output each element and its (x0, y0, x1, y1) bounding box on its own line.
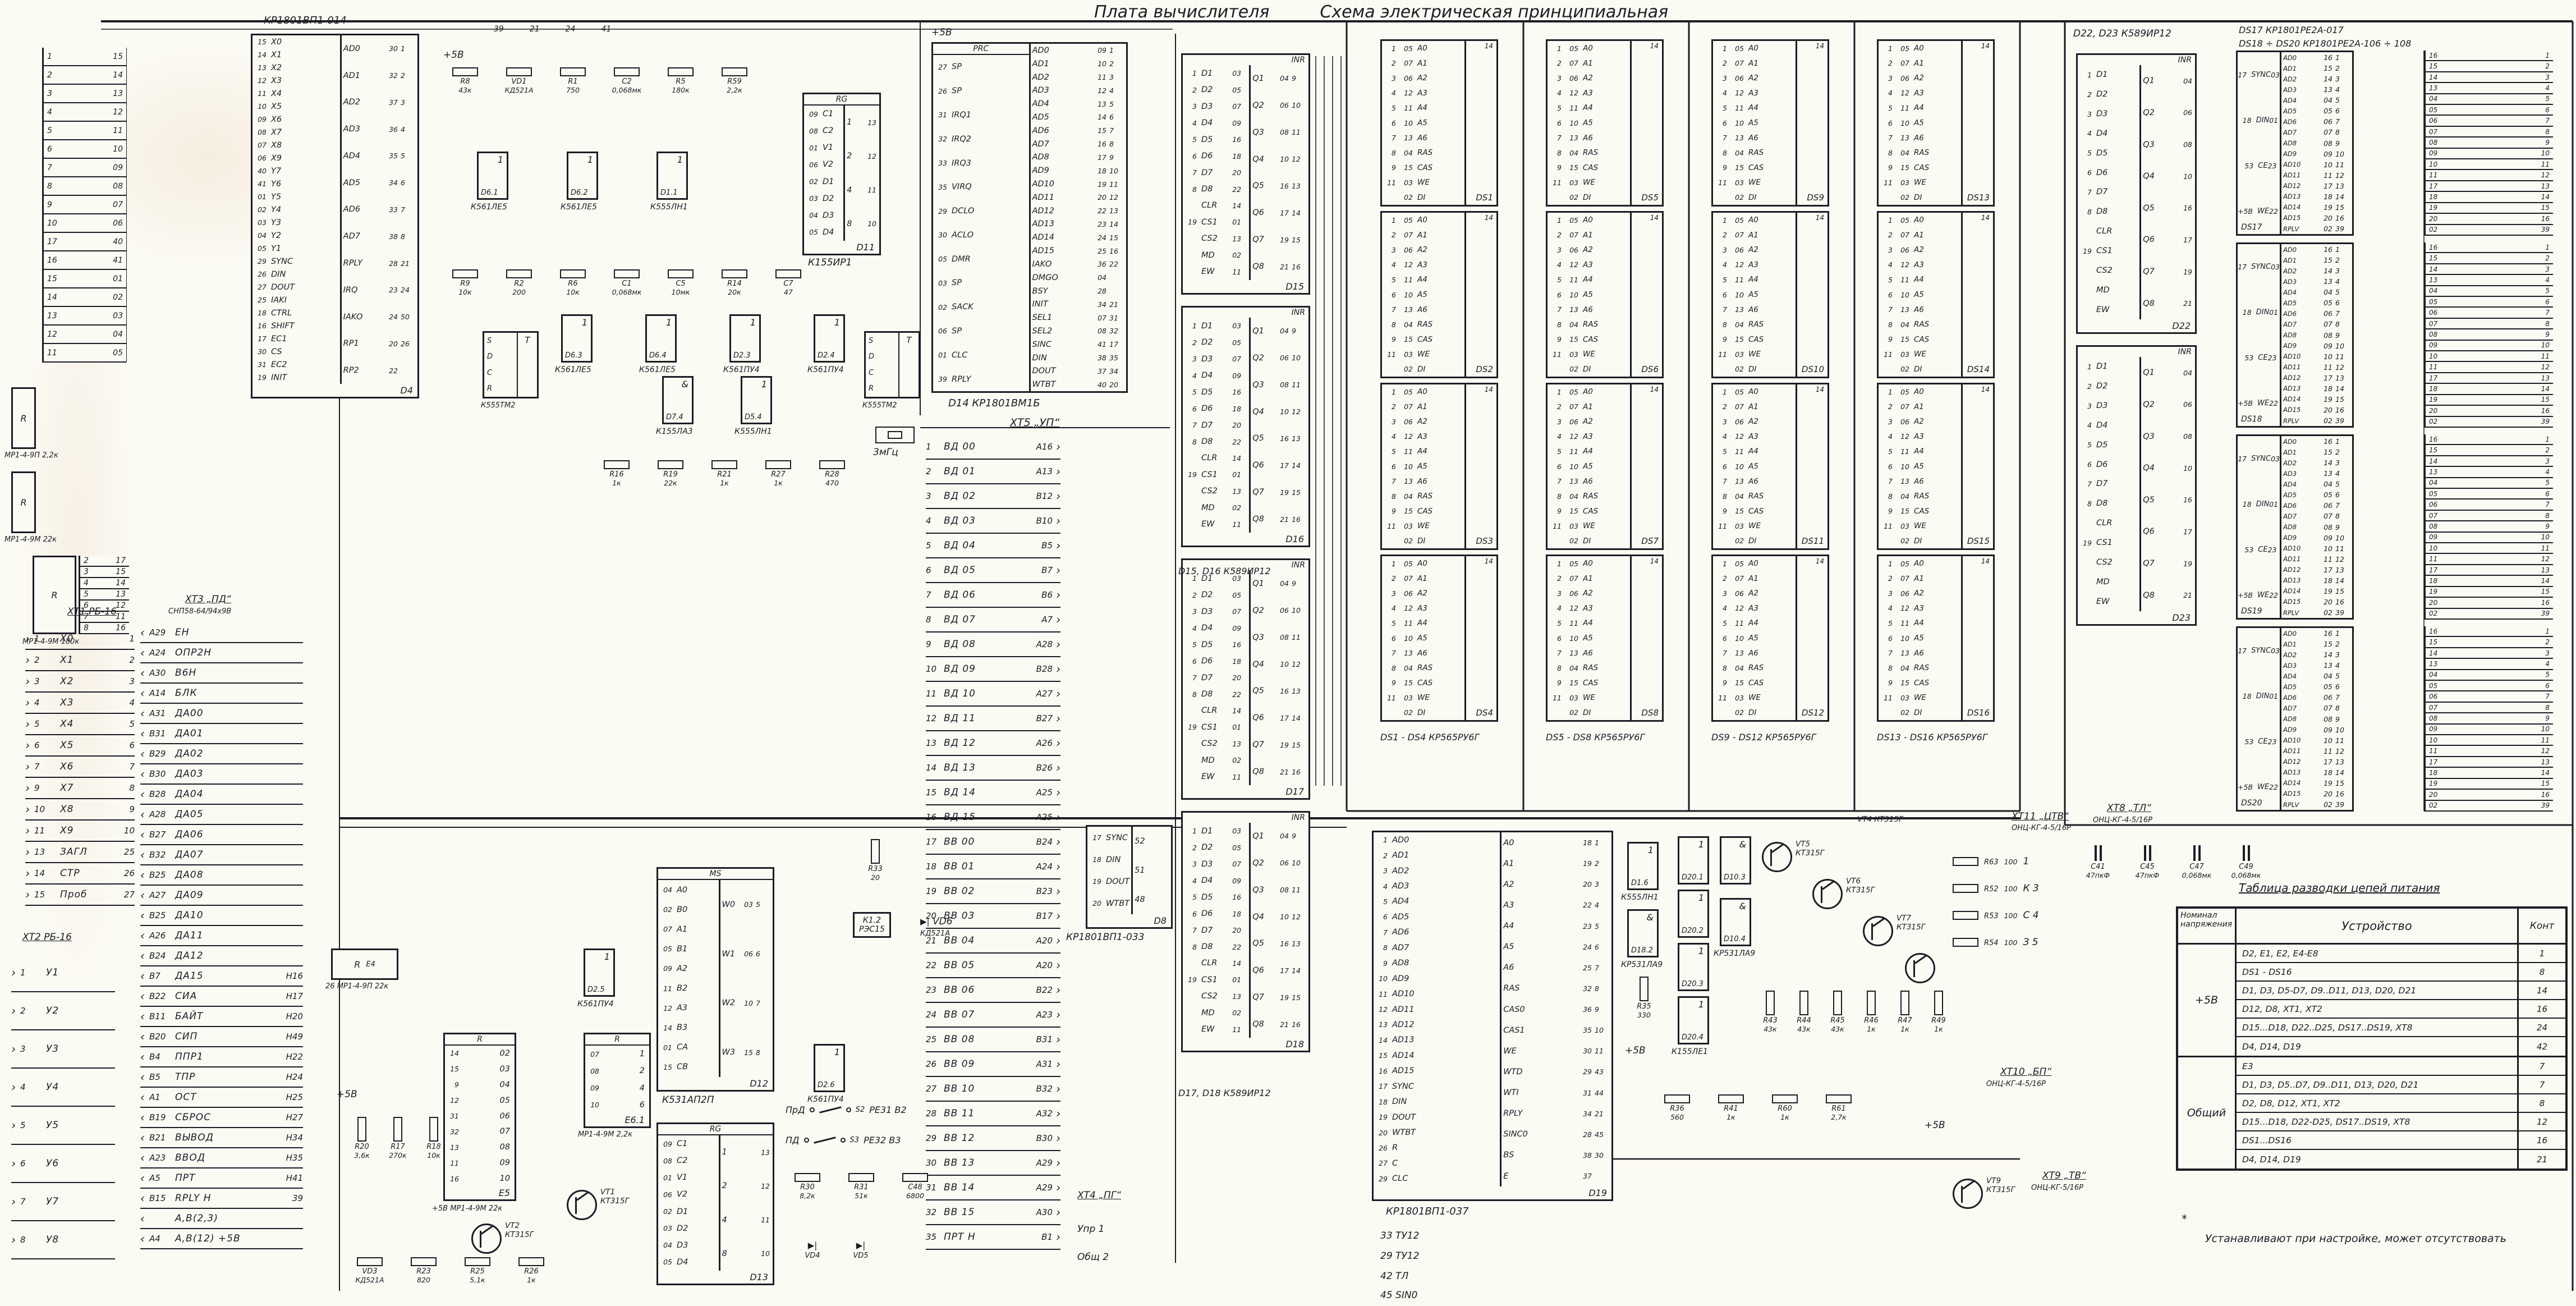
signal-name: СИП (175, 1031, 274, 1042)
pin-number: 4 (1382, 604, 1399, 612)
crystal-icon (875, 427, 915, 443)
ic-d8: 17SYNC18DIN19DOUT20WTBT 525148 D8 (1086, 825, 1173, 929)
npn-transistor-icon (567, 1190, 597, 1220)
pin-name: AD11 (2281, 747, 2318, 755)
pin-number: 34 (1092, 300, 1109, 309)
pin-number: 44 (1595, 1089, 1611, 1097)
pin-name: A1 (1747, 402, 1796, 411)
pin-row: W2107 (720, 979, 773, 1028)
pin-number: 12 (1895, 604, 1912, 612)
pin-number: 13 (2335, 566, 2352, 574)
ram-group-chips: 14 105A0207A1306A2412A3511A4610A5713A680… (1380, 39, 1498, 722)
pin-number: 26 (105, 868, 135, 878)
pin-number: 16 (2429, 52, 2437, 59)
part-value: 10к (458, 288, 471, 296)
pin-row: 18DIN01 (2238, 109, 2280, 132)
pin-row: Q61714 (1251, 704, 1308, 731)
pin-row: Q82116 (1251, 253, 1308, 280)
pin-number: 13 (1730, 305, 1747, 314)
pin-number: 2 (2335, 448, 2352, 456)
pin-row: 06SP (933, 319, 1029, 343)
pin-number: 13 (116, 590, 126, 599)
pin-number: 16 (2429, 627, 2437, 635)
pin-name: AD10 (2281, 544, 2318, 552)
pin-number: 9 (2335, 523, 2352, 531)
pin-name: Q8 (2141, 299, 2178, 308)
pin-row: 02DI (1713, 361, 1796, 377)
pin-number: 7 (2545, 309, 2550, 317)
contact-id: А5 (149, 1173, 175, 1183)
pin-name: A0 (1912, 387, 1961, 396)
discrete-part: C470,068мк (2175, 845, 2219, 879)
pin-number: 20 (2429, 215, 2437, 223)
pin-number: 9 (1879, 163, 1895, 172)
part-value: 20 (871, 873, 880, 882)
pin-name: A0 (1416, 387, 1464, 396)
pin-number: 18 (2429, 193, 2437, 201)
xt5-row: 3ВД 02В12 (926, 484, 1060, 509)
pin-name: BS (1501, 1151, 1578, 1160)
pin-number: 2 (1382, 231, 1399, 239)
pin-number: 07 (1895, 402, 1912, 411)
pin-name: AD5 (1031, 113, 1093, 122)
video-output-row: R53 100 С 4 (1953, 910, 2039, 921)
pin-number: 17 (2318, 758, 2335, 766)
pin-number: 26 (926, 1059, 944, 1069)
pin-number: 7 (1374, 928, 1390, 937)
resistor-icon (1953, 911, 1978, 920)
power-table-heading: Таблица разводки цепей питания (2239, 881, 2440, 895)
pin-name: RPLY (950, 375, 1029, 384)
pin-name: D4 (1200, 371, 1232, 380)
corner-pin: 14 (1485, 557, 1493, 565)
pin-number: 02 (1564, 365, 1581, 373)
pin-number: 08 (2429, 523, 2437, 530)
pin-row: 412A3 (1382, 429, 1464, 445)
pin-number: 18 (252, 309, 269, 317)
pin-row: 12AD11 (1374, 1002, 1500, 1017)
transceiver-left-pins: 1D1032D2053D3074D4095D5166D6187D7208D822… (1183, 318, 1251, 533)
pin-row: 17SYNC (1087, 827, 1131, 849)
ladder-row: 089 (2426, 713, 2553, 724)
ram-group-caption: DS1 - DS4 КР565РУ6Г (1380, 732, 1498, 743)
pin-number: 10 (2429, 544, 2437, 552)
pin-number: 1 (2545, 436, 2550, 443)
ladder-row: 115 (44, 48, 126, 66)
pin-name: D2 (821, 194, 843, 203)
pin-row: 610A5 (1713, 116, 1796, 131)
resistor-r33: R3320 (858, 839, 892, 882)
pin-name: CS2 (1200, 739, 1232, 748)
discrete-part: R1750 (551, 67, 595, 94)
pin-name: A4 (1747, 618, 1796, 627)
pin-number: 15 (1399, 507, 1416, 515)
ladder-row: 2016 (2426, 406, 2553, 416)
ladder-row: 1011 (2426, 543, 2553, 554)
transistor-label: VT4 КТ315Г (1857, 815, 1903, 824)
device-list: D2, Е1, Е2, Е4-Е8 (2237, 945, 2517, 962)
pin-row: AD121713 (2281, 181, 2352, 191)
pin-row: A4235 (1501, 916, 1611, 937)
ladder-row: 143 (2426, 72, 2553, 83)
title-main: Плата вычислителя (1094, 2, 1269, 22)
pin-row: 412A3 (1879, 258, 1961, 273)
pin-row: 1D103 (1183, 823, 1249, 839)
pin-row: 1D1 (2078, 65, 2139, 85)
pin-row: Q71915 (1251, 731, 1308, 758)
pin-row: AD152016 (2281, 789, 2352, 799)
pin-number: 16 (2541, 599, 2550, 607)
pin-number: 17 (116, 556, 126, 565)
pin-number: 13 (2318, 661, 2335, 670)
pin-number: 2 (1548, 402, 1564, 411)
pin-number: 2 (105, 655, 135, 665)
pin-number: 5 (47, 126, 52, 135)
pin-number: 02 (2429, 610, 2437, 617)
xt5-row: 30ВВ 13А29 (926, 1151, 1060, 1176)
pin-number: 08 (658, 1157, 675, 1165)
pin-name: AD10 (2281, 736, 2318, 744)
transistor-label: VT5КТ315Г (1796, 840, 1824, 858)
pin-name: AD15 (1390, 1066, 1500, 1075)
gate-symbol: & (664, 378, 692, 389)
pin-number: 12 (1564, 432, 1581, 441)
pin-number: 07 (1564, 402, 1581, 411)
rom-left-pins: 17SYNC0318DIN0153CE23+5ВWE22 (2238, 52, 2281, 234)
pin-number: 29 (933, 207, 950, 216)
pin-number: 01 (2269, 692, 2280, 700)
pin-row: 082 (585, 1062, 649, 1079)
pin-name: A6 (1416, 134, 1464, 143)
corner-pin: 14 (1816, 42, 1824, 50)
pin-number: 9 (1713, 163, 1730, 172)
ram-chip-ref: DS10 (1802, 364, 1824, 374)
pin-number: 3 (34, 676, 60, 686)
pin-number: 18 (2238, 692, 2254, 700)
pin-number: 08 (2318, 331, 2335, 340)
pin-number: 11 (1548, 350, 1564, 359)
pin-number: 9 (47, 200, 52, 209)
pin-number: 24 (384, 313, 401, 321)
pin-number: 05 (2318, 107, 2335, 115)
pin-name: AD5 (2281, 299, 2318, 307)
contact-id: В12 (1023, 491, 1053, 501)
xt5-row: 9ВД 08А28 (926, 633, 1060, 657)
pin-number: 04 (2318, 96, 2335, 104)
pin-row: 03SP (933, 271, 1029, 295)
pin-row: 02DI (1382, 533, 1464, 548)
pin-row: Q30811 (1251, 372, 1308, 398)
pin-name: A2 (1912, 74, 1961, 83)
signal-name: ВД 09 (944, 663, 1023, 675)
pin-number: 8 (2078, 500, 2095, 508)
pin-row: 1103WE (1879, 347, 1961, 362)
pin-row: 511A4 (1713, 100, 1796, 116)
ic-transceiver: INR 1D1032D2053D3074D4095D5166D6187D7208… (1181, 306, 1310, 547)
part-ref: C41 (2091, 863, 2105, 871)
logic-gate-d5-4: 1D5.4К555ЛН1 (741, 376, 772, 424)
pin-number: 03 (1399, 350, 1416, 359)
ram-chip-ref: DS13 (1967, 193, 1990, 203)
discrete-part: R1922к (649, 460, 692, 487)
ram-chip-ref: DS5 (1641, 193, 1659, 203)
pin-row: Q308 (2141, 420, 2195, 452)
discrete-part: C486800 (893, 1173, 937, 1200)
rom-column: 17SYNC0318DIN0153CE23+5ВWE22 AD0161AD115… (2236, 51, 2354, 812)
pin-row: AD90910 (2281, 149, 2352, 159)
pin-name: A4 (1416, 618, 1464, 627)
pin-number: 13 (1564, 305, 1581, 314)
pin-number: 16 (2541, 791, 2550, 799)
contact-count: 1 (2517, 945, 2565, 962)
pin-number: 2 (84, 556, 89, 565)
pin-number: 01 (1232, 470, 1249, 479)
component-icon (722, 67, 747, 76)
ram-chip: 14 105A0207A1306A2412A3511A4610A5713A680… (1711, 39, 1829, 207)
pin-number: 22 (2269, 399, 2280, 407)
wire-number: Н49 (274, 1032, 303, 1042)
ladder-row: 1112 (2426, 362, 2553, 373)
pin-number: 07 (1232, 860, 1249, 868)
pin-name: A2 (1912, 417, 1961, 426)
pin-row: 412A3 (1548, 601, 1630, 616)
pin-row: 53CE23 (2238, 539, 2280, 561)
pin-number: 04 (2178, 369, 2195, 377)
pin-row: Q61714 (1251, 199, 1308, 226)
pin-number: 11 (1399, 104, 1416, 112)
pin-number: 37 (384, 98, 401, 107)
pin-number: 06 (658, 1190, 675, 1199)
pin-row: 804RAS (1382, 145, 1464, 161)
pin-number: 05 (2429, 490, 2437, 498)
pin-number: 15 (2335, 395, 2352, 404)
pin-name: WE (1581, 693, 1630, 702)
pin-row: AD2143 (2281, 265, 2352, 276)
d8-right-pins: 525148 (1133, 827, 1171, 914)
pin-row: 207A1 (1713, 400, 1796, 415)
pin-number: 9 (1713, 335, 1730, 343)
pin-name: A0 (675, 886, 719, 895)
pin-name: A1 (1912, 59, 1961, 68)
pin-row: 412A3 (1713, 258, 1796, 273)
pin-name: 8 (720, 1249, 756, 1258)
pin-row: AD3134 (2281, 276, 2352, 287)
pin-number: 05 (1730, 44, 1747, 53)
pin-number: 02 (2318, 224, 2335, 233)
pin-number: 09 (1232, 624, 1249, 633)
pin-number: 03 (1895, 350, 1912, 359)
pin-name: AD5 (1390, 913, 1500, 922)
pin-number: 22 (2269, 207, 2280, 216)
pin-row: 804RAS (1382, 661, 1464, 676)
pin-name: Q2 (2141, 108, 2178, 117)
rom-chip-ref: DS18 (2241, 415, 2262, 424)
pin-number: 16 (2318, 437, 2335, 446)
pin-number: 05 (1730, 216, 1747, 224)
pin-number: 14 (2429, 457, 2437, 465)
pin-number: 11 (2318, 171, 2335, 180)
pin-name: AD10 (1390, 989, 1500, 998)
ram-group: 14 105A0207A1306A2412A3511A4610A5713A680… (1877, 39, 1995, 743)
pin-number: 3 (1382, 589, 1399, 598)
xt3-title: ХТ3 „ПД“ (185, 594, 231, 605)
pin-name: D1 (675, 1207, 719, 1216)
component-icon (411, 1257, 437, 1266)
pin-name: Q1 (1251, 327, 1275, 336)
signal-name: Х9 (60, 825, 105, 836)
part-value: 100 (2004, 938, 2018, 947)
part-ref: R31 (854, 1183, 869, 1192)
signal-name: ВД 13 (944, 762, 1023, 773)
pin-number: 1 (1382, 216, 1399, 224)
signal-name: ДА11 (175, 930, 274, 941)
pin-row: CLR14 (1183, 450, 1249, 466)
pin-name: X5 (269, 102, 340, 111)
gate-type: К561ПУ4 (807, 1095, 844, 1104)
part-ref: R18 (426, 1143, 441, 1151)
part-ref: VD4 (805, 1252, 820, 1260)
pin-row: 6D6 (2078, 163, 2139, 182)
pin-number: 10 (1895, 291, 1912, 299)
pin-name: AD0 (1031, 46, 1093, 55)
pin-number: 4 (2335, 661, 2352, 670)
pin-name: A3 (1912, 89, 1961, 98)
ladder-row: 1105 (44, 344, 126, 363)
pin-number: 04 (1275, 74, 1292, 83)
table-row: D2, Е1, Е2, Е4-Е8 1 (2237, 945, 2565, 963)
pin-row: 306A2 (1548, 242, 1630, 258)
pin-name: A1 (1416, 574, 1464, 583)
pin-row: Q516 (2141, 193, 2195, 224)
pin-row: 04D3 (804, 207, 843, 224)
pin-row: 610A5 (1548, 631, 1630, 646)
ladder-row: 152 (2426, 253, 2553, 264)
pin-name: CS2 (2095, 558, 2139, 567)
pin-name: DOUT (1390, 1113, 1500, 1122)
net-number: 24 (566, 25, 576, 34)
pin-name: A5 (1912, 290, 1961, 299)
pin-number: 07 (2429, 512, 2437, 520)
pin-name: A2 (1581, 417, 1630, 426)
contact-id: В4 (149, 1052, 175, 1062)
ladder-row: 1641 (44, 251, 126, 270)
npn-transistor-icon (471, 1223, 502, 1254)
pin-number: 6 (2545, 682, 2550, 690)
pin-number: 15 (2429, 62, 2437, 70)
pin-number: 16 (2335, 214, 2352, 222)
pin-number: 6 (34, 740, 60, 750)
discrete-part: R4343к (1756, 991, 1784, 1033)
pin-number: 20 (1232, 926, 1249, 934)
pin-name: AD6 (1031, 126, 1093, 135)
pin-number: 23 (2268, 737, 2280, 746)
pin-number: 03 (1399, 694, 1416, 702)
pin-number: 4 (1548, 604, 1564, 612)
pin-number: 11 (862, 186, 879, 194)
pin-name: Q7 (1251, 235, 1275, 244)
contact-id: А1 (149, 1092, 175, 1102)
pin-row: 105A0 (1713, 556, 1796, 571)
pin-name: CE (2256, 546, 2267, 554)
pin-number: 07 (113, 200, 123, 209)
pin-number: 43 (1595, 1067, 1611, 1076)
pin-row: 412A3 (1382, 258, 1464, 273)
pin-name: A6 (1581, 305, 1630, 314)
pin-number: 14 (2318, 459, 2335, 467)
pin-number: 13 (2318, 469, 2335, 478)
pin-number: 24 (1092, 233, 1109, 242)
pin-number: 04 (2318, 288, 2335, 296)
pin-row: MD02 (1183, 752, 1249, 768)
part-ref: C47 (2189, 863, 2204, 871)
pin-row: 14X1 (252, 48, 340, 61)
pin-number: 17 (2318, 566, 2335, 574)
pin-row: RP222 (342, 357, 417, 384)
pin-name: A1 (1912, 402, 1961, 411)
logic-gate-d1-6: 1D1.6К555ЛН1 (1627, 842, 1659, 890)
pin-row: 610A5 (1879, 116, 1961, 131)
pin-number: 41 (1092, 340, 1109, 349)
pin-number: 12 (1730, 432, 1747, 441)
pin-number: 10 (252, 102, 269, 111)
pin-name: DIN (2254, 500, 2270, 508)
pin-number: 10 (2335, 726, 2352, 734)
pin-row: Q82116 (1251, 1011, 1308, 1038)
pin-number: 1 (1879, 560, 1895, 568)
pin-name: CAS (1747, 335, 1796, 344)
signal-name: А,В(12) +5В (175, 1233, 274, 1244)
contact-id: А4 (149, 1234, 175, 1244)
pin-name: AD3 (2281, 86, 2318, 94)
contact-id: А31 (1023, 1059, 1053, 1069)
contact-id: В26 (1023, 763, 1053, 773)
contact-id: В22 (149, 991, 175, 1001)
pin-row: 306A2 (1713, 71, 1796, 86)
pin-name: Q8 (1251, 767, 1275, 776)
part-ref: R54 (1984, 939, 1999, 947)
pin-name: A6 (1416, 305, 1464, 314)
pin-row: 610A5 (1382, 631, 1464, 646)
pin-number: 29 (252, 257, 269, 265)
pin-row: 04A0 (658, 880, 719, 900)
pin-row: CLR14 (1183, 955, 1249, 972)
ram-chip: 14 105A0207A1306A2412A3511A4610A5713A680… (1380, 39, 1498, 207)
contact-id: А29 (149, 627, 175, 638)
pin-number: 02 (1232, 1009, 1249, 1017)
ram-pins: 105A0207A1306A2412A3511A4610A5713A6804RA… (1879, 384, 1963, 548)
pin-row: 3D307 (1183, 351, 1249, 367)
pin-row: CAS0369 (1501, 999, 1611, 1020)
pin-number: 10 (2318, 161, 2335, 169)
pin-row: Q82116 (1251, 506, 1308, 533)
pin-number: 06 (2318, 117, 2335, 126)
logic-gate-d10-4: &D10.4КР531ЛА9 (1720, 898, 1751, 946)
pin-number: 8 (926, 615, 944, 625)
pin-number: 03 (739, 900, 756, 909)
pin-row: DMGO04 (1031, 271, 1127, 285)
component-icon (452, 269, 478, 278)
pin-row: 412A3 (1548, 429, 1630, 445)
pin-number: 15 (252, 38, 269, 46)
device-list: D4, D14, D19 (2237, 1037, 2517, 1056)
pin-name: A6 (1912, 477, 1961, 486)
pin-row: Q51613 (1251, 425, 1308, 452)
pin-name: DMR (950, 255, 1029, 264)
pin-row: AD4045 (2281, 95, 2352, 106)
pin-number: 50 (401, 313, 417, 321)
contact-id: А25 (1023, 787, 1053, 798)
pin-name: A5 (1416, 290, 1464, 299)
